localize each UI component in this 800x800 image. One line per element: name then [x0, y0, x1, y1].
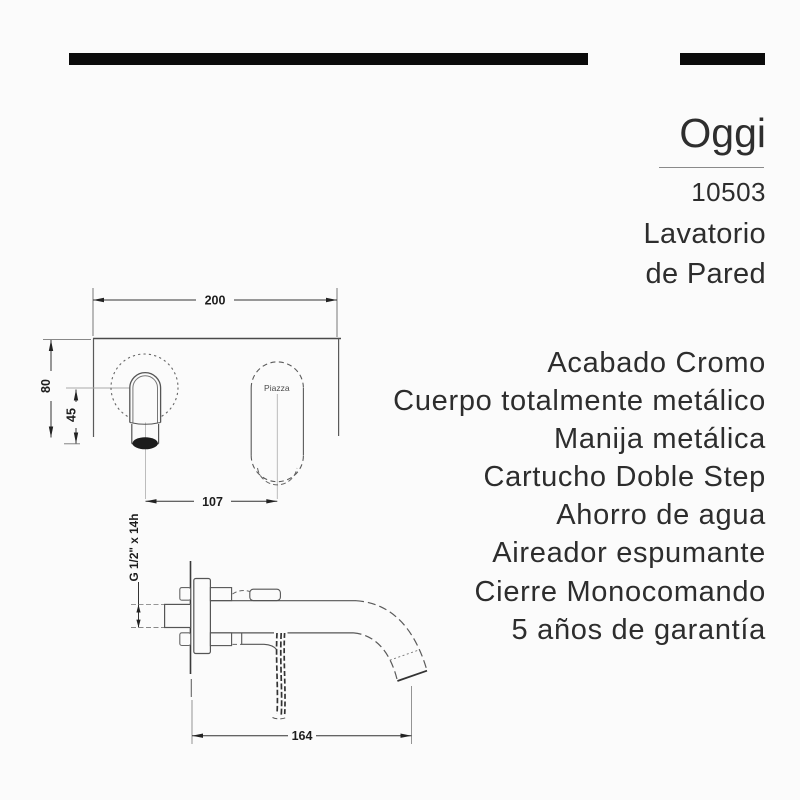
svg-text:80: 80: [39, 379, 53, 393]
svg-text:200: 200: [205, 294, 226, 308]
svg-text:164: 164: [292, 729, 313, 743]
svg-text:107: 107: [202, 495, 223, 509]
svg-text:45: 45: [65, 408, 79, 422]
svg-text:Piazza: Piazza: [264, 383, 290, 393]
svg-text:G 1/2" x 14h: G 1/2" x 14h: [127, 514, 141, 582]
